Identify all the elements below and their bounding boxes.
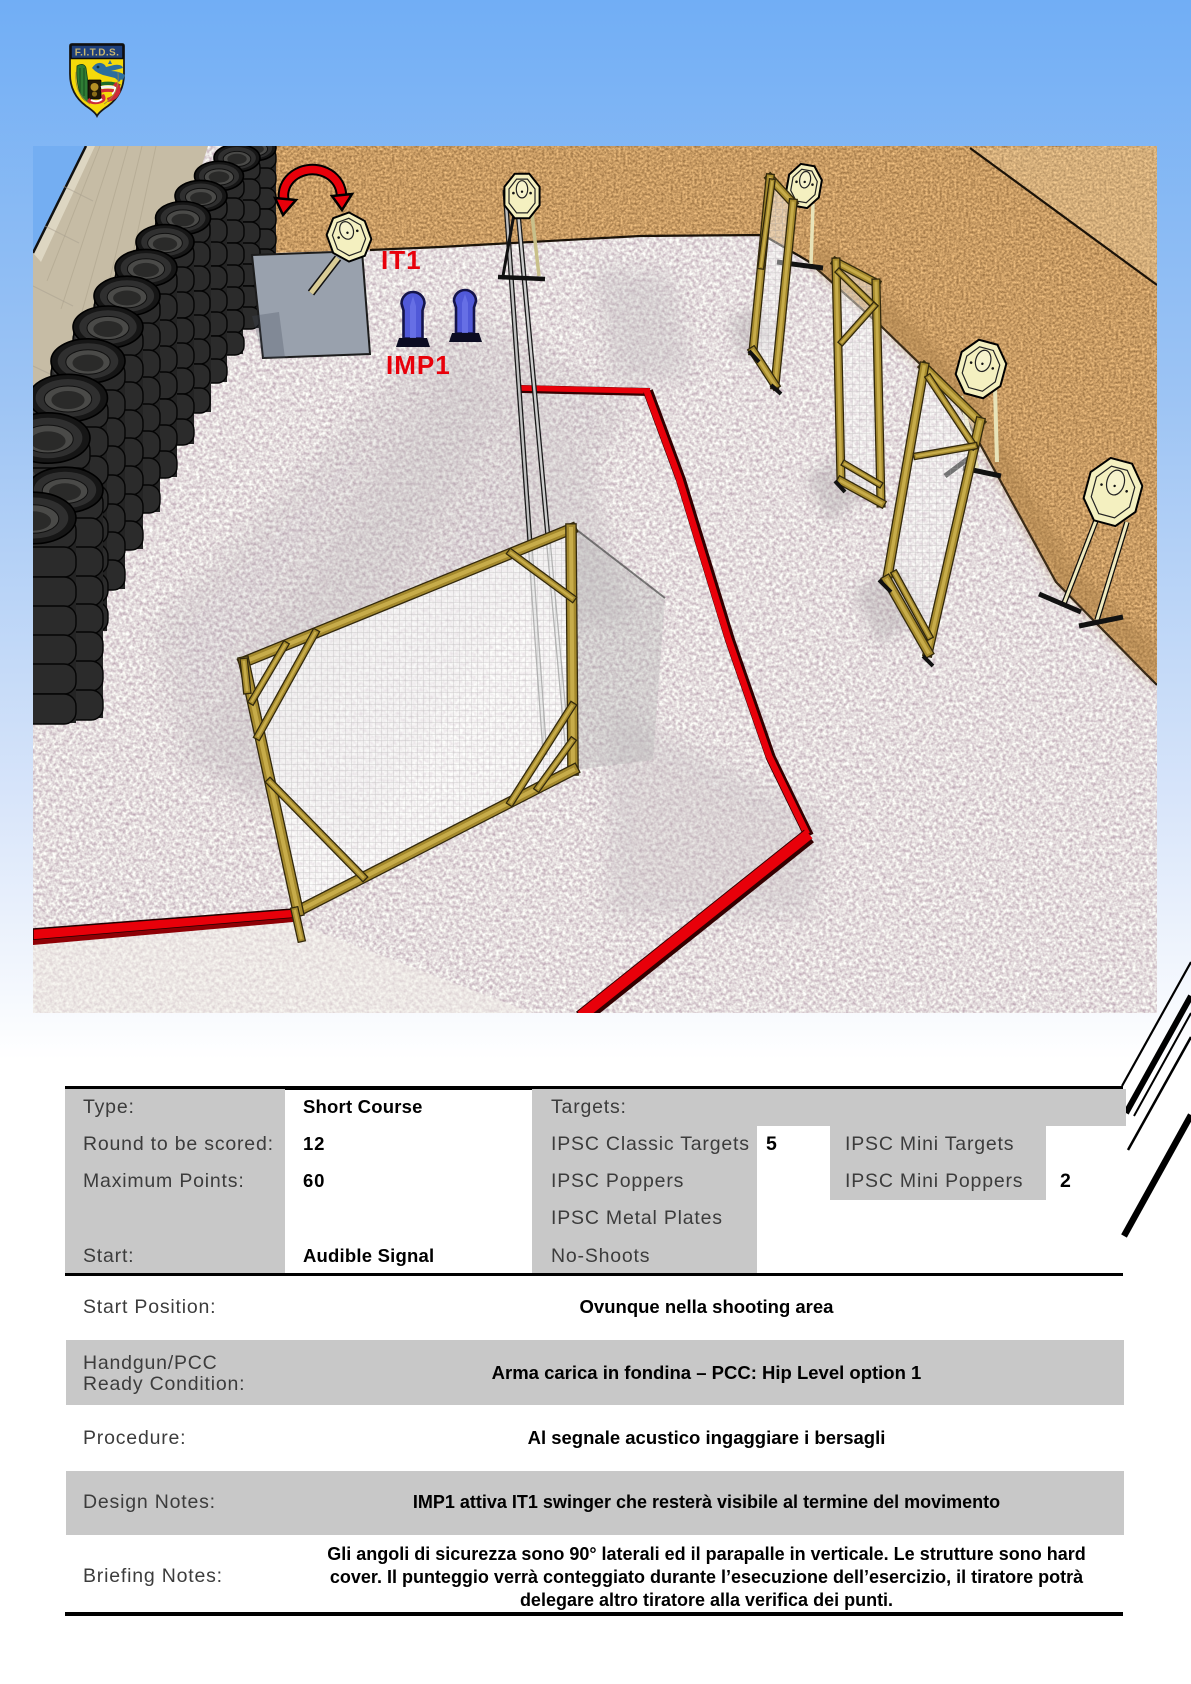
svg-text:IMP1: IMP1: [386, 350, 451, 380]
svg-text:IT1: IT1: [381, 245, 422, 275]
svg-text:F.I.T.D.S.: F.I.T.D.S.: [75, 48, 120, 59]
